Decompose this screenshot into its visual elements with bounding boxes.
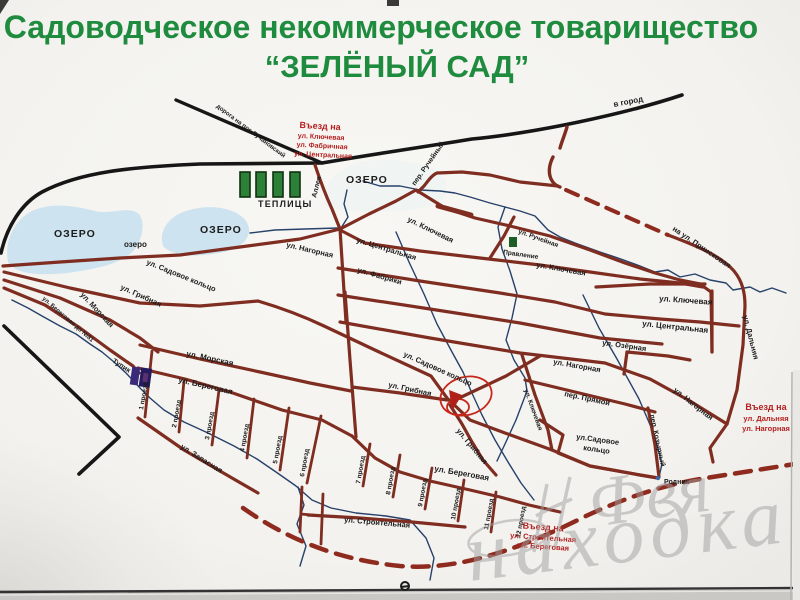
- svg-text:ОЗЕРО: ОЗЕРО: [54, 228, 96, 240]
- svg-text:ул. Дальняя: ул. Дальняя: [743, 414, 788, 423]
- svg-text:Садоводческое некоммерческое т: Садоводческое некоммерческое товариществ…: [4, 9, 758, 45]
- svg-text:ОЗЕРО: ОЗЕРО: [200, 224, 242, 236]
- svg-text:ОЗЕРО: ОЗЕРО: [346, 174, 388, 186]
- svg-text:Въезд на: Въезд на: [745, 402, 787, 412]
- svg-text:ул. Нагорная: ул. Нагорная: [742, 424, 790, 433]
- svg-text:озеро: озеро: [124, 240, 147, 249]
- svg-text:“ЗЕЛЁНЫЙ САД”: “ЗЕЛЁНЫЙ САД”: [265, 48, 529, 84]
- svg-text:ТЕПЛИЦЫ: ТЕПЛИЦЫ: [258, 199, 313, 209]
